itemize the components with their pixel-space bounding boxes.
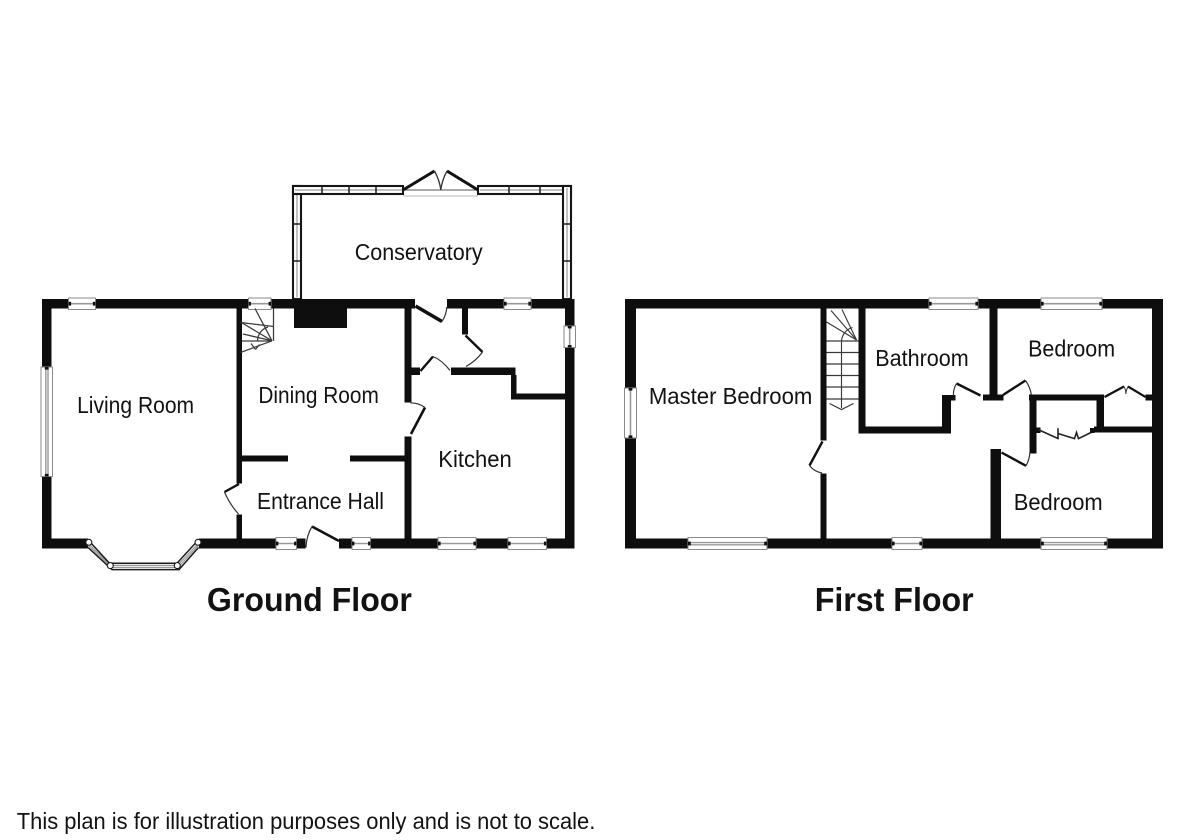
- svg-text:Master Bedroom: Master Bedroom: [649, 383, 813, 409]
- svg-text:Bedroom: Bedroom: [1014, 489, 1103, 515]
- svg-text:Kitchen: Kitchen: [438, 446, 512, 472]
- svg-text:First Floor: First Floor: [815, 581, 974, 618]
- svg-text:Entrance Hall: Entrance Hall: [257, 488, 384, 514]
- svg-text:Conservatory: Conservatory: [355, 239, 483, 265]
- svg-text:Bedroom: Bedroom: [1028, 336, 1115, 362]
- svg-text:Ground Floor: Ground Floor: [207, 581, 412, 618]
- svg-text:Dining Room: Dining Room: [258, 382, 379, 408]
- svg-text:Bathroom: Bathroom: [875, 345, 969, 371]
- svg-text:Living Room: Living Room: [77, 392, 194, 418]
- svg-text:This plan is for illustration: This plan is for illustration purposes o…: [17, 808, 596, 834]
